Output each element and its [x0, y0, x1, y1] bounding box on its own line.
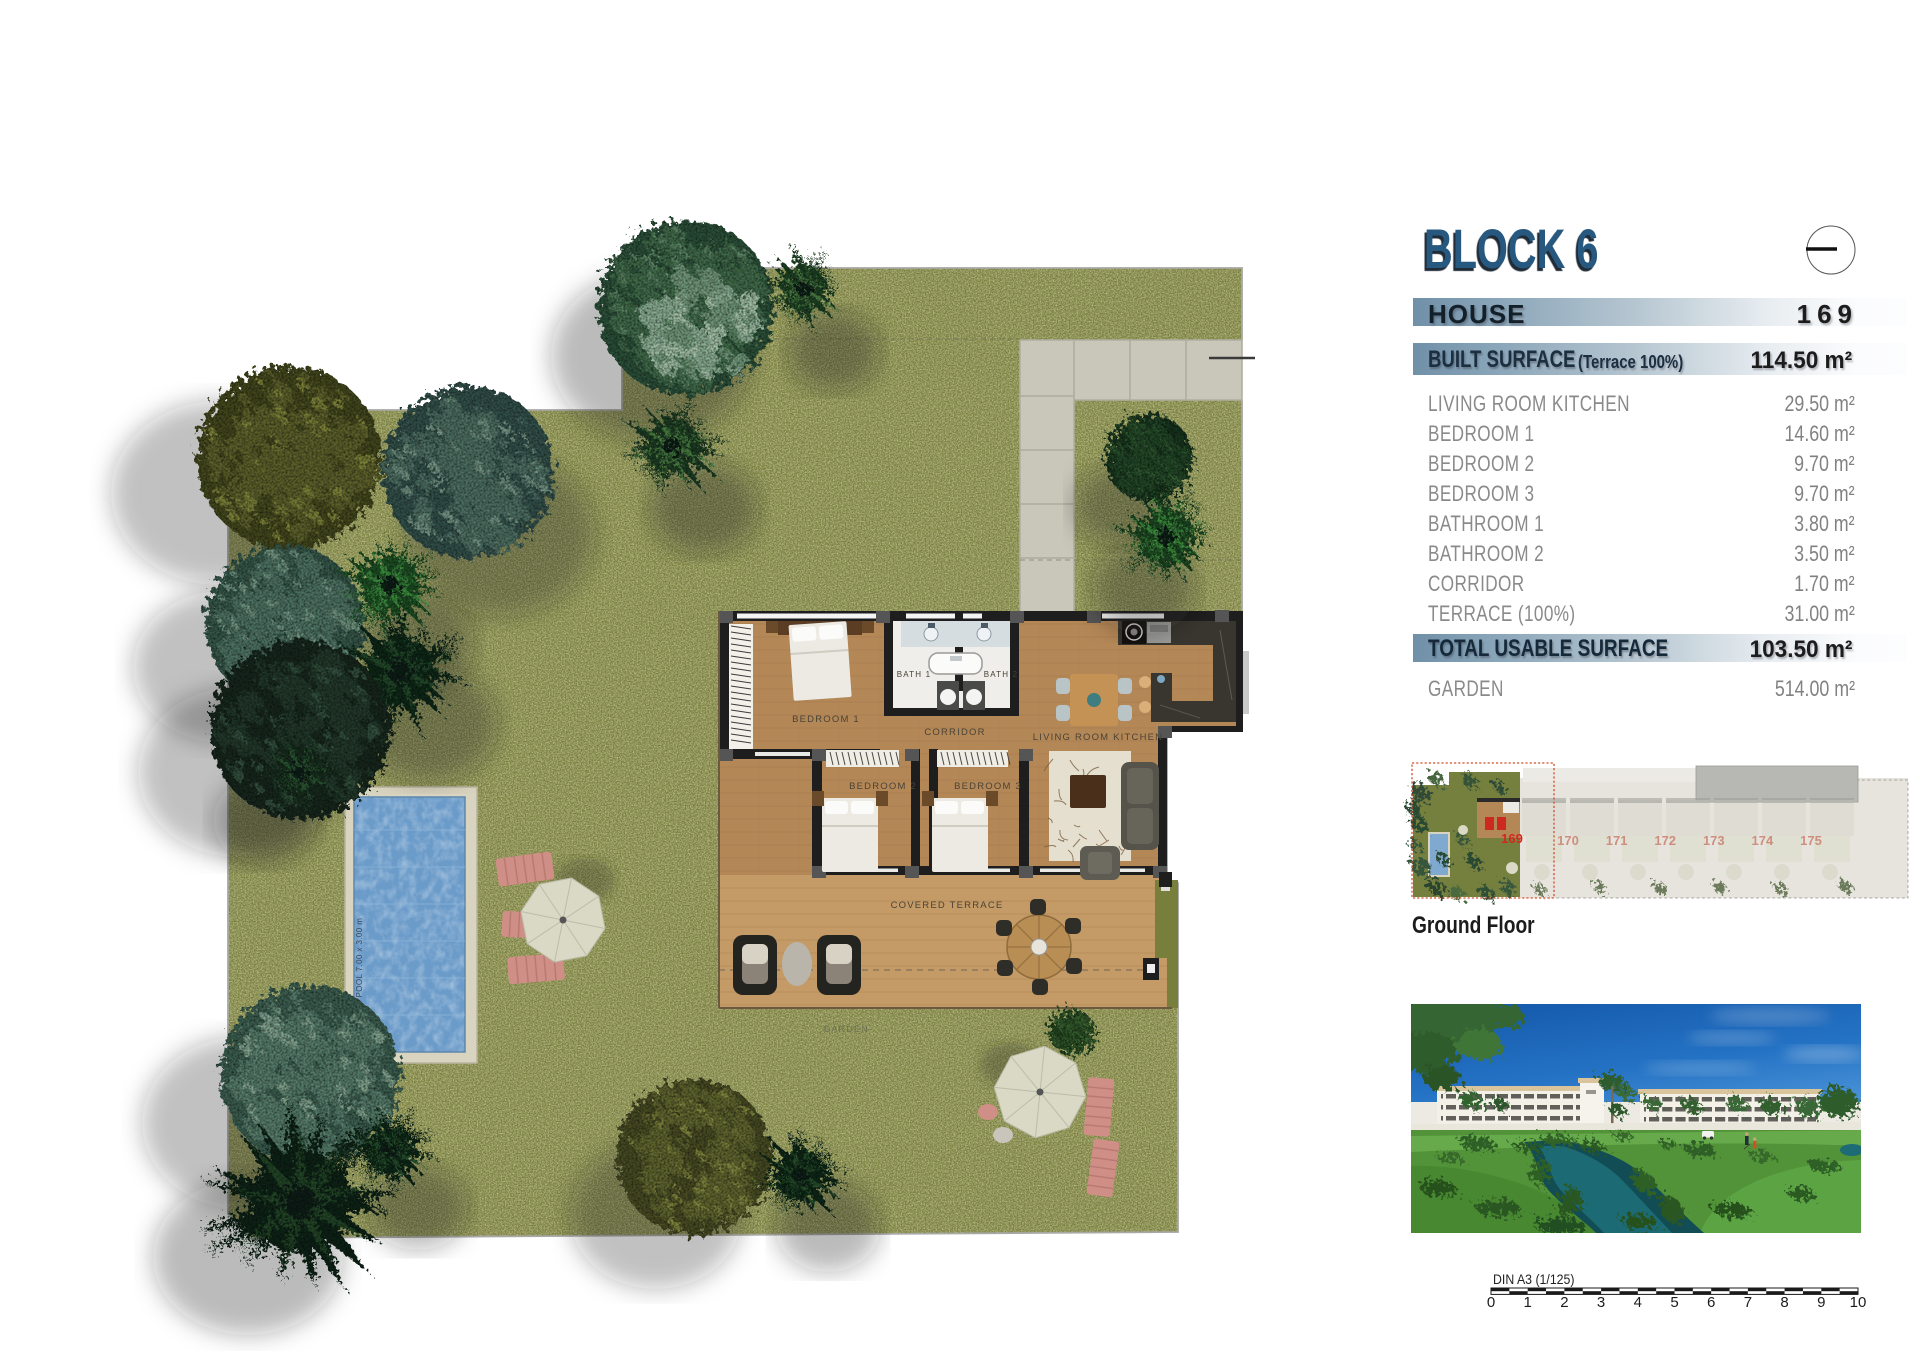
svg-text:GARDEN: GARDEN — [823, 1024, 869, 1034]
svg-text:2: 2 — [1560, 1294, 1568, 1311]
svg-text:BEDROOM 2: BEDROOM 2 — [849, 781, 917, 792]
svg-text:174: 174 — [1752, 833, 1774, 848]
svg-text:1: 1 — [1524, 1294, 1532, 1311]
svg-text:170: 170 — [1557, 833, 1579, 848]
svg-text:BEDROOM 3: BEDROOM 3 — [954, 781, 1022, 792]
svg-text:COVERED TERRACE: COVERED TERRACE — [891, 900, 1004, 911]
svg-text:0: 0 — [1487, 1294, 1495, 1311]
svg-text:169: 169 — [1501, 831, 1523, 846]
svg-text:171: 171 — [1606, 833, 1628, 848]
svg-text:BATH 1: BATH 1 — [897, 670, 932, 679]
svg-text:BEDROOM 1: BEDROOM 1 — [792, 714, 860, 725]
svg-text:10: 10 — [1850, 1294, 1867, 1311]
svg-text:6: 6 — [1707, 1294, 1715, 1311]
svg-text:5: 5 — [1670, 1294, 1678, 1311]
svg-text:173: 173 — [1703, 833, 1725, 848]
svg-text:3: 3 — [1597, 1294, 1605, 1311]
svg-text:4: 4 — [1634, 1294, 1642, 1311]
svg-text:CORRIDOR: CORRIDOR — [924, 727, 985, 738]
svg-text:7: 7 — [1744, 1294, 1752, 1311]
svg-text:8: 8 — [1780, 1294, 1788, 1311]
svg-text:175: 175 — [1800, 833, 1822, 848]
svg-text:9: 9 — [1817, 1294, 1825, 1311]
svg-text:BATH 2: BATH 2 — [984, 670, 1019, 679]
svg-text:172: 172 — [1654, 833, 1676, 848]
svg-text:LIVING ROOM KITCHEN: LIVING ROOM KITCHEN — [1033, 732, 1163, 743]
